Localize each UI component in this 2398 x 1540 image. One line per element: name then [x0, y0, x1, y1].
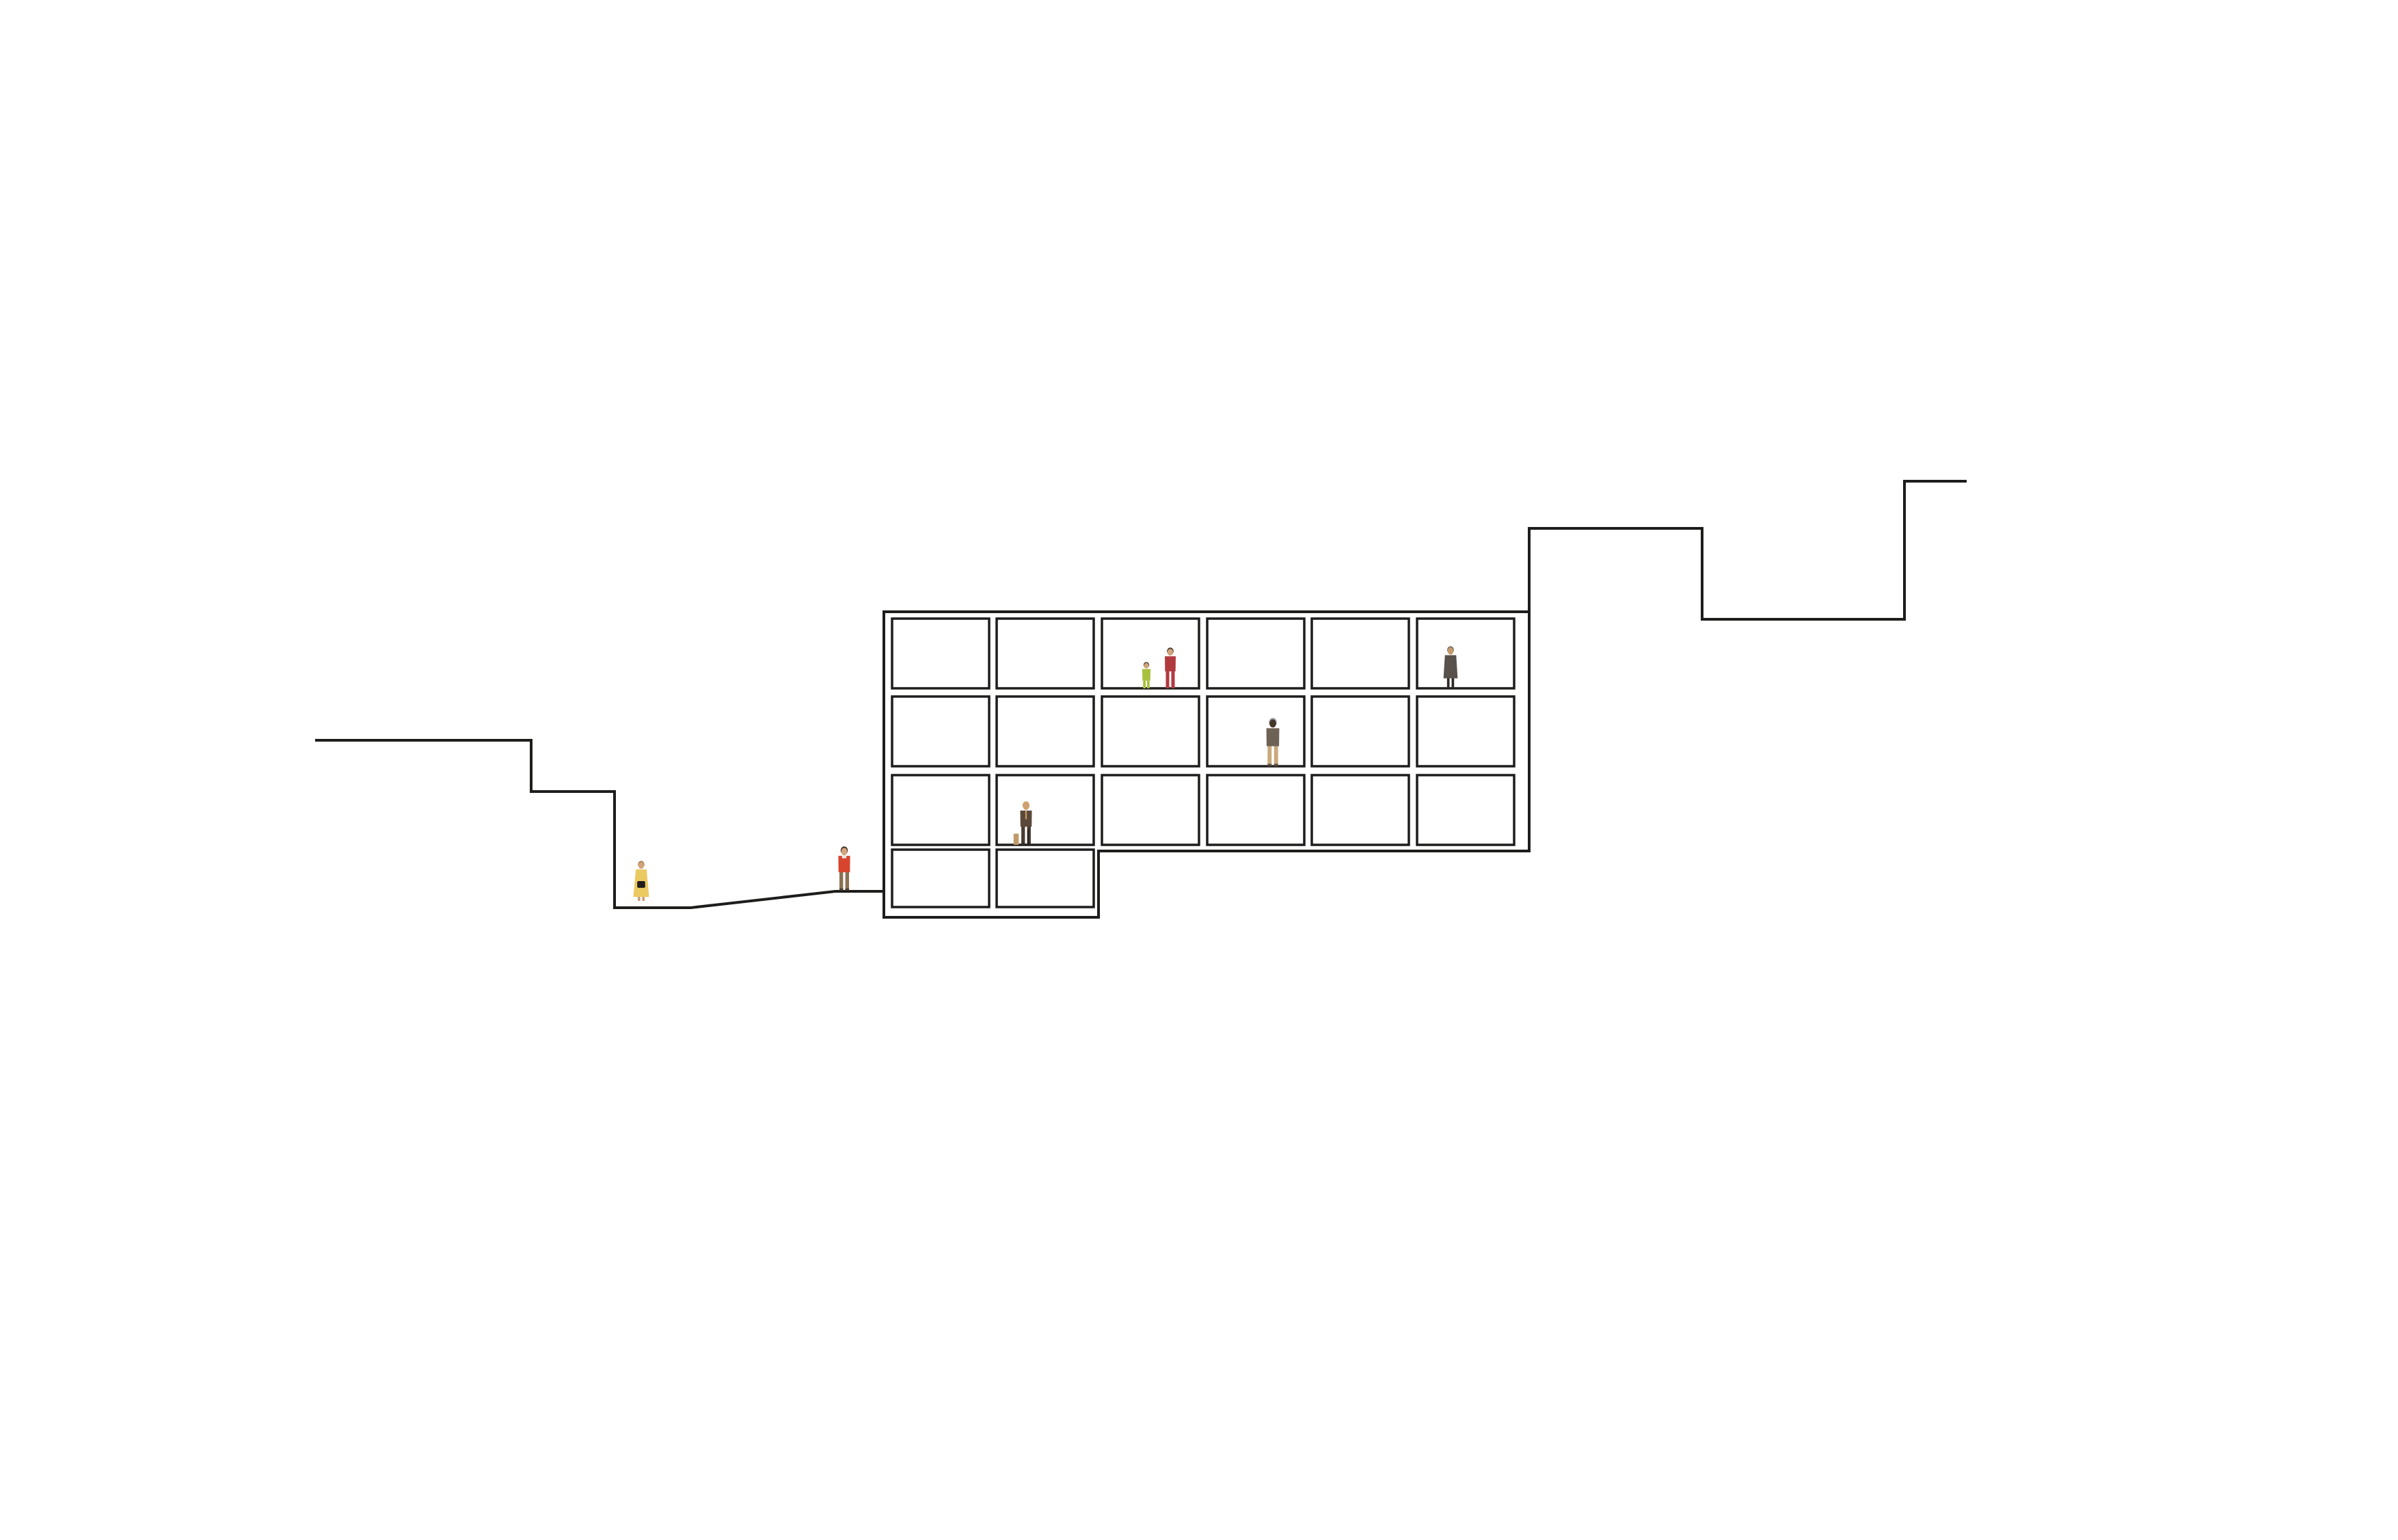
person-man-red-jacket	[838, 846, 850, 891]
room-cell-r1c3	[1102, 619, 1199, 688]
person-woman-yellow-dress	[633, 861, 649, 901]
room-cell-r2c6	[1417, 697, 1514, 766]
room-cell-r2c3	[1102, 697, 1199, 766]
room-cell-r3c1	[892, 775, 989, 845]
terrain-line-left	[315, 740, 884, 908]
section-svg	[0, 0, 2398, 1540]
room-cell-r3c5	[1312, 775, 1409, 845]
room-cell-r3c2	[997, 775, 1094, 845]
room-cell-r4c2	[997, 850, 1094, 907]
room-cell-r3c6	[1417, 775, 1514, 845]
room-cell-r3c4	[1207, 775, 1304, 845]
room-cell-r2c4	[1207, 697, 1304, 766]
room-cell-r1c5	[1312, 619, 1409, 688]
architectural-section-canvas	[0, 0, 2398, 1540]
room-cell-r1c6	[1417, 619, 1514, 688]
room-cell-r4c1	[892, 850, 989, 907]
terrain-line-right	[1529, 481, 1967, 619]
room-cell-r1c1	[892, 619, 989, 688]
room-cell-r2c1	[892, 697, 989, 766]
room-cell-r3c3	[1102, 775, 1199, 845]
room-cell-r1c4	[1207, 619, 1304, 688]
room-cell-r2c5	[1312, 697, 1409, 766]
room-cell-r2c2	[997, 697, 1094, 766]
room-cell-r1c2	[997, 619, 1094, 688]
